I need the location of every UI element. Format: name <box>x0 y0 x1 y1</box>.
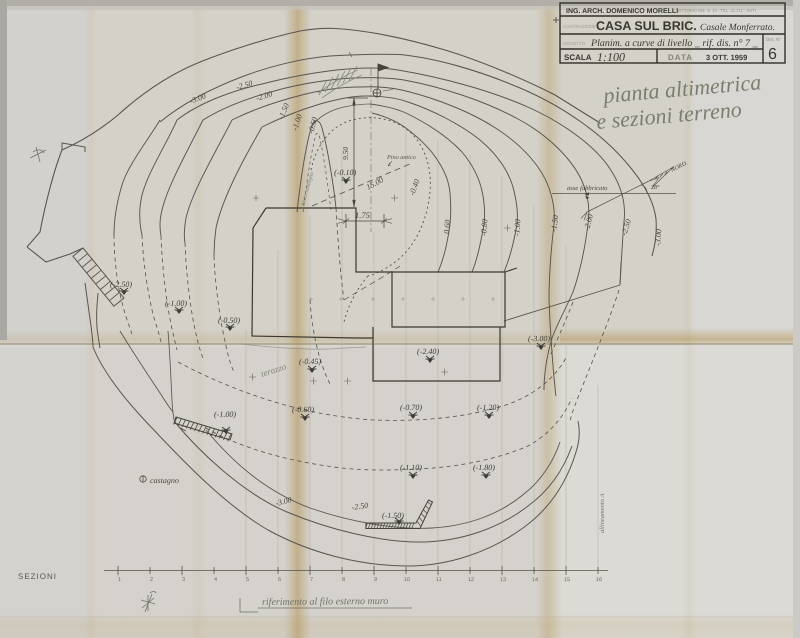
svg-text:(-0.10): (-0.10) <box>334 168 356 177</box>
svg-text:(-0.50): (-0.50) <box>218 316 240 325</box>
svg-text:Pino antico: Pino antico <box>386 154 416 161</box>
svg-text:11: 11 <box>436 577 442 583</box>
svg-text:-0.80: -0.80 <box>479 219 489 236</box>
svg-text:1.75: 1.75 <box>355 210 370 220</box>
svg-text:(-1.50): (-1.50) <box>382 511 404 520</box>
svg-text:CASA SUL BRIC.: CASA SUL BRIC. <box>596 19 697 33</box>
svg-text:asse fabbricato: asse fabbricato <box>567 185 608 192</box>
svg-text:12: 12 <box>468 577 474 583</box>
svg-text:(-0.60): (-0.60) <box>292 405 314 414</box>
svg-text:6: 6 <box>278 577 281 583</box>
svg-text:14: 14 <box>532 577 538 583</box>
svg-text:13: 13 <box>500 577 506 583</box>
svg-text:(-1.00): (-1.00) <box>165 299 187 308</box>
svg-text:(-3.00): (-3.00) <box>528 334 550 343</box>
svg-text:C. VITTORIO EM. N. 10 - TEL. 4: C. VITTORIO EM. N. 10 - TEL. 41.211 - AS… <box>672 8 756 13</box>
svg-text:28°: 28° <box>651 184 660 191</box>
svg-text:(-1.10): (-1.10) <box>400 463 422 472</box>
svg-text:(-0.45): (-0.45) <box>299 357 321 366</box>
svg-text:5: 5 <box>246 577 249 583</box>
svg-text:9: 9 <box>374 577 377 583</box>
svg-text:castagno: castagno <box>150 476 179 485</box>
svg-text:(-1.20): (-1.20) <box>477 403 499 412</box>
svg-text:-3.00: -3.00 <box>653 229 663 246</box>
svg-text:9.50: 9.50 <box>341 147 350 160</box>
svg-text:Casale Monferrato.: Casale Monferrato. <box>700 22 775 33</box>
svg-text:6: 6 <box>768 46 777 63</box>
svg-text:15: 15 <box>564 577 570 583</box>
svg-text:riferimento al filo esterno mu: riferimento al filo esterno muro <box>262 596 388 608</box>
svg-text:(-1.80): (-1.80) <box>473 463 495 472</box>
svg-text:(-2.50): (-2.50) <box>110 280 132 289</box>
svg-text:(-1.00): (-1.00) <box>214 410 236 419</box>
svg-text:OGGETTO: OGGETTO <box>563 41 586 46</box>
svg-text:ING. ARCH. DOMENICO MORELLI: ING. ARCH. DOMENICO MORELLI <box>566 8 678 15</box>
svg-text:SEZIONI: SEZIONI <box>18 572 57 581</box>
svg-text:16: 16 <box>596 577 602 583</box>
svg-text:8: 8 <box>342 577 345 583</box>
svg-text:DATA: DATA <box>668 53 693 62</box>
svg-text:SCALA: SCALA <box>564 53 592 62</box>
svg-text:7: 7 <box>310 577 313 583</box>
svg-text:4: 4 <box>214 577 217 583</box>
svg-text:3: 3 <box>182 577 185 583</box>
svg-text:Planim. a curve di livello _ r: Planim. a curve di livello _ rif. dis. n… <box>590 38 758 49</box>
svg-text:allineamento A: allineamento A <box>599 494 606 533</box>
svg-text:10: 10 <box>404 577 410 583</box>
svg-text:3 OTT. 1959: 3 OTT. 1959 <box>706 53 747 62</box>
svg-text:2: 2 <box>150 577 153 583</box>
svg-text:COSTRUZIONE: COSTRUZIONE <box>563 24 596 29</box>
svg-text:(-2.40): (-2.40) <box>417 347 439 356</box>
svg-text:1:100: 1:100 <box>597 50 625 64</box>
svg-text:(-0.70): (-0.70) <box>400 403 422 412</box>
svg-text:0.60: 0.60 <box>442 219 452 234</box>
svg-text:1: 1 <box>118 577 121 583</box>
svg-text:-1.00: -1.00 <box>512 219 522 236</box>
svg-text:DIS. N°: DIS. N° <box>766 37 781 42</box>
